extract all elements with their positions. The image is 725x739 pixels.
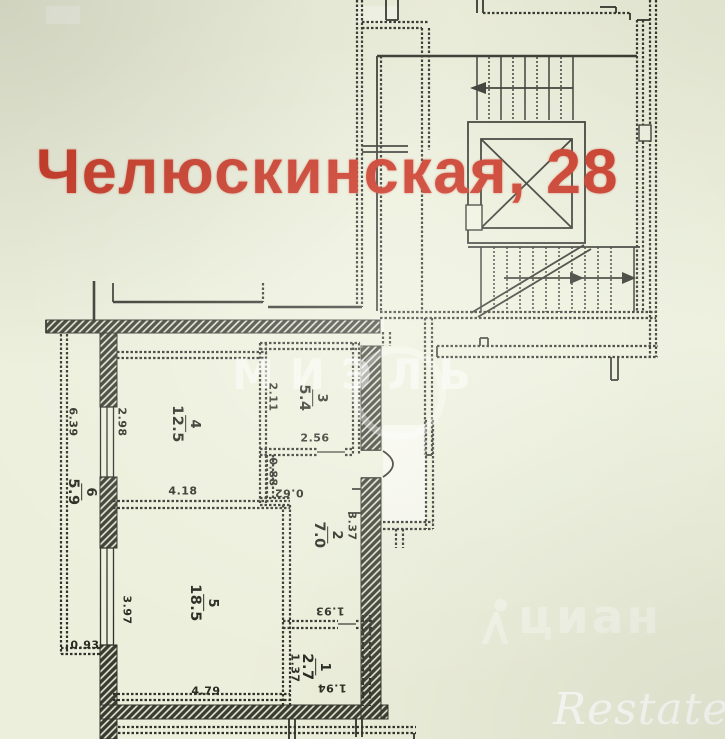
access-corridor-walls [94,281,390,346]
dimension-label: 4.79 [191,685,220,698]
dimension-label: 1.93 [315,605,344,618]
staircase-upper-flight [470,57,573,120]
dimension-label: 2.56 [300,432,329,445]
corridor-walls [348,318,658,548]
room-label-5-room: 5 18.5 [187,584,219,622]
dimension-label: 1.94 [317,682,346,695]
room-label-6-balcony: 6 5.9 [65,478,97,505]
room-label-3-kitchen: 3 5.4 [296,384,328,411]
dimension-label: 6.39 [67,407,80,436]
dimension-label: 0.62 [274,487,303,500]
address-title: Челюскинская, 28 [36,136,619,208]
room-number: 2 [328,526,344,543]
dimension-label: 0.88 [267,457,280,486]
room-area: 18.5 [187,584,204,622]
room-area: 5.9 [65,478,82,505]
room-number: 5 [204,594,220,611]
room-label-1-bathroom: 1 2.7 [299,653,331,680]
floorplan-screenshot: МИЭЛЬ циан Restate Челюскинская, 28 1 2.… [0,0,725,739]
neighbour-walls [118,719,416,739]
room-number: 3 [313,389,329,406]
floor-plan-drawing [0,0,725,739]
dimension-label: 0.93 [70,639,99,652]
room-number: 1 [316,658,332,675]
staircase-lower-flight [468,245,640,317]
dimension-label: 2.11 [267,382,280,411]
dimension-label: 1.37 [289,653,302,682]
dimension-label: 3.97 [121,595,134,624]
stair-arrow-down-icon [570,272,584,284]
dimension-label: 3.37 [346,511,359,540]
dimension-label: 4.18 [168,485,197,498]
room-number: 4 [186,415,202,432]
room-number: 6 [82,483,98,500]
room-area: 5.4 [296,384,313,411]
stair-arrow-up-icon [470,82,486,94]
room-label-2-hall: 2 7.0 [311,521,343,548]
dimension-label: 2.98 [116,407,129,436]
room-area: 7.0 [311,521,328,548]
room-area: 12.5 [169,405,186,443]
room-label-4-room: 4 12.5 [169,405,201,443]
